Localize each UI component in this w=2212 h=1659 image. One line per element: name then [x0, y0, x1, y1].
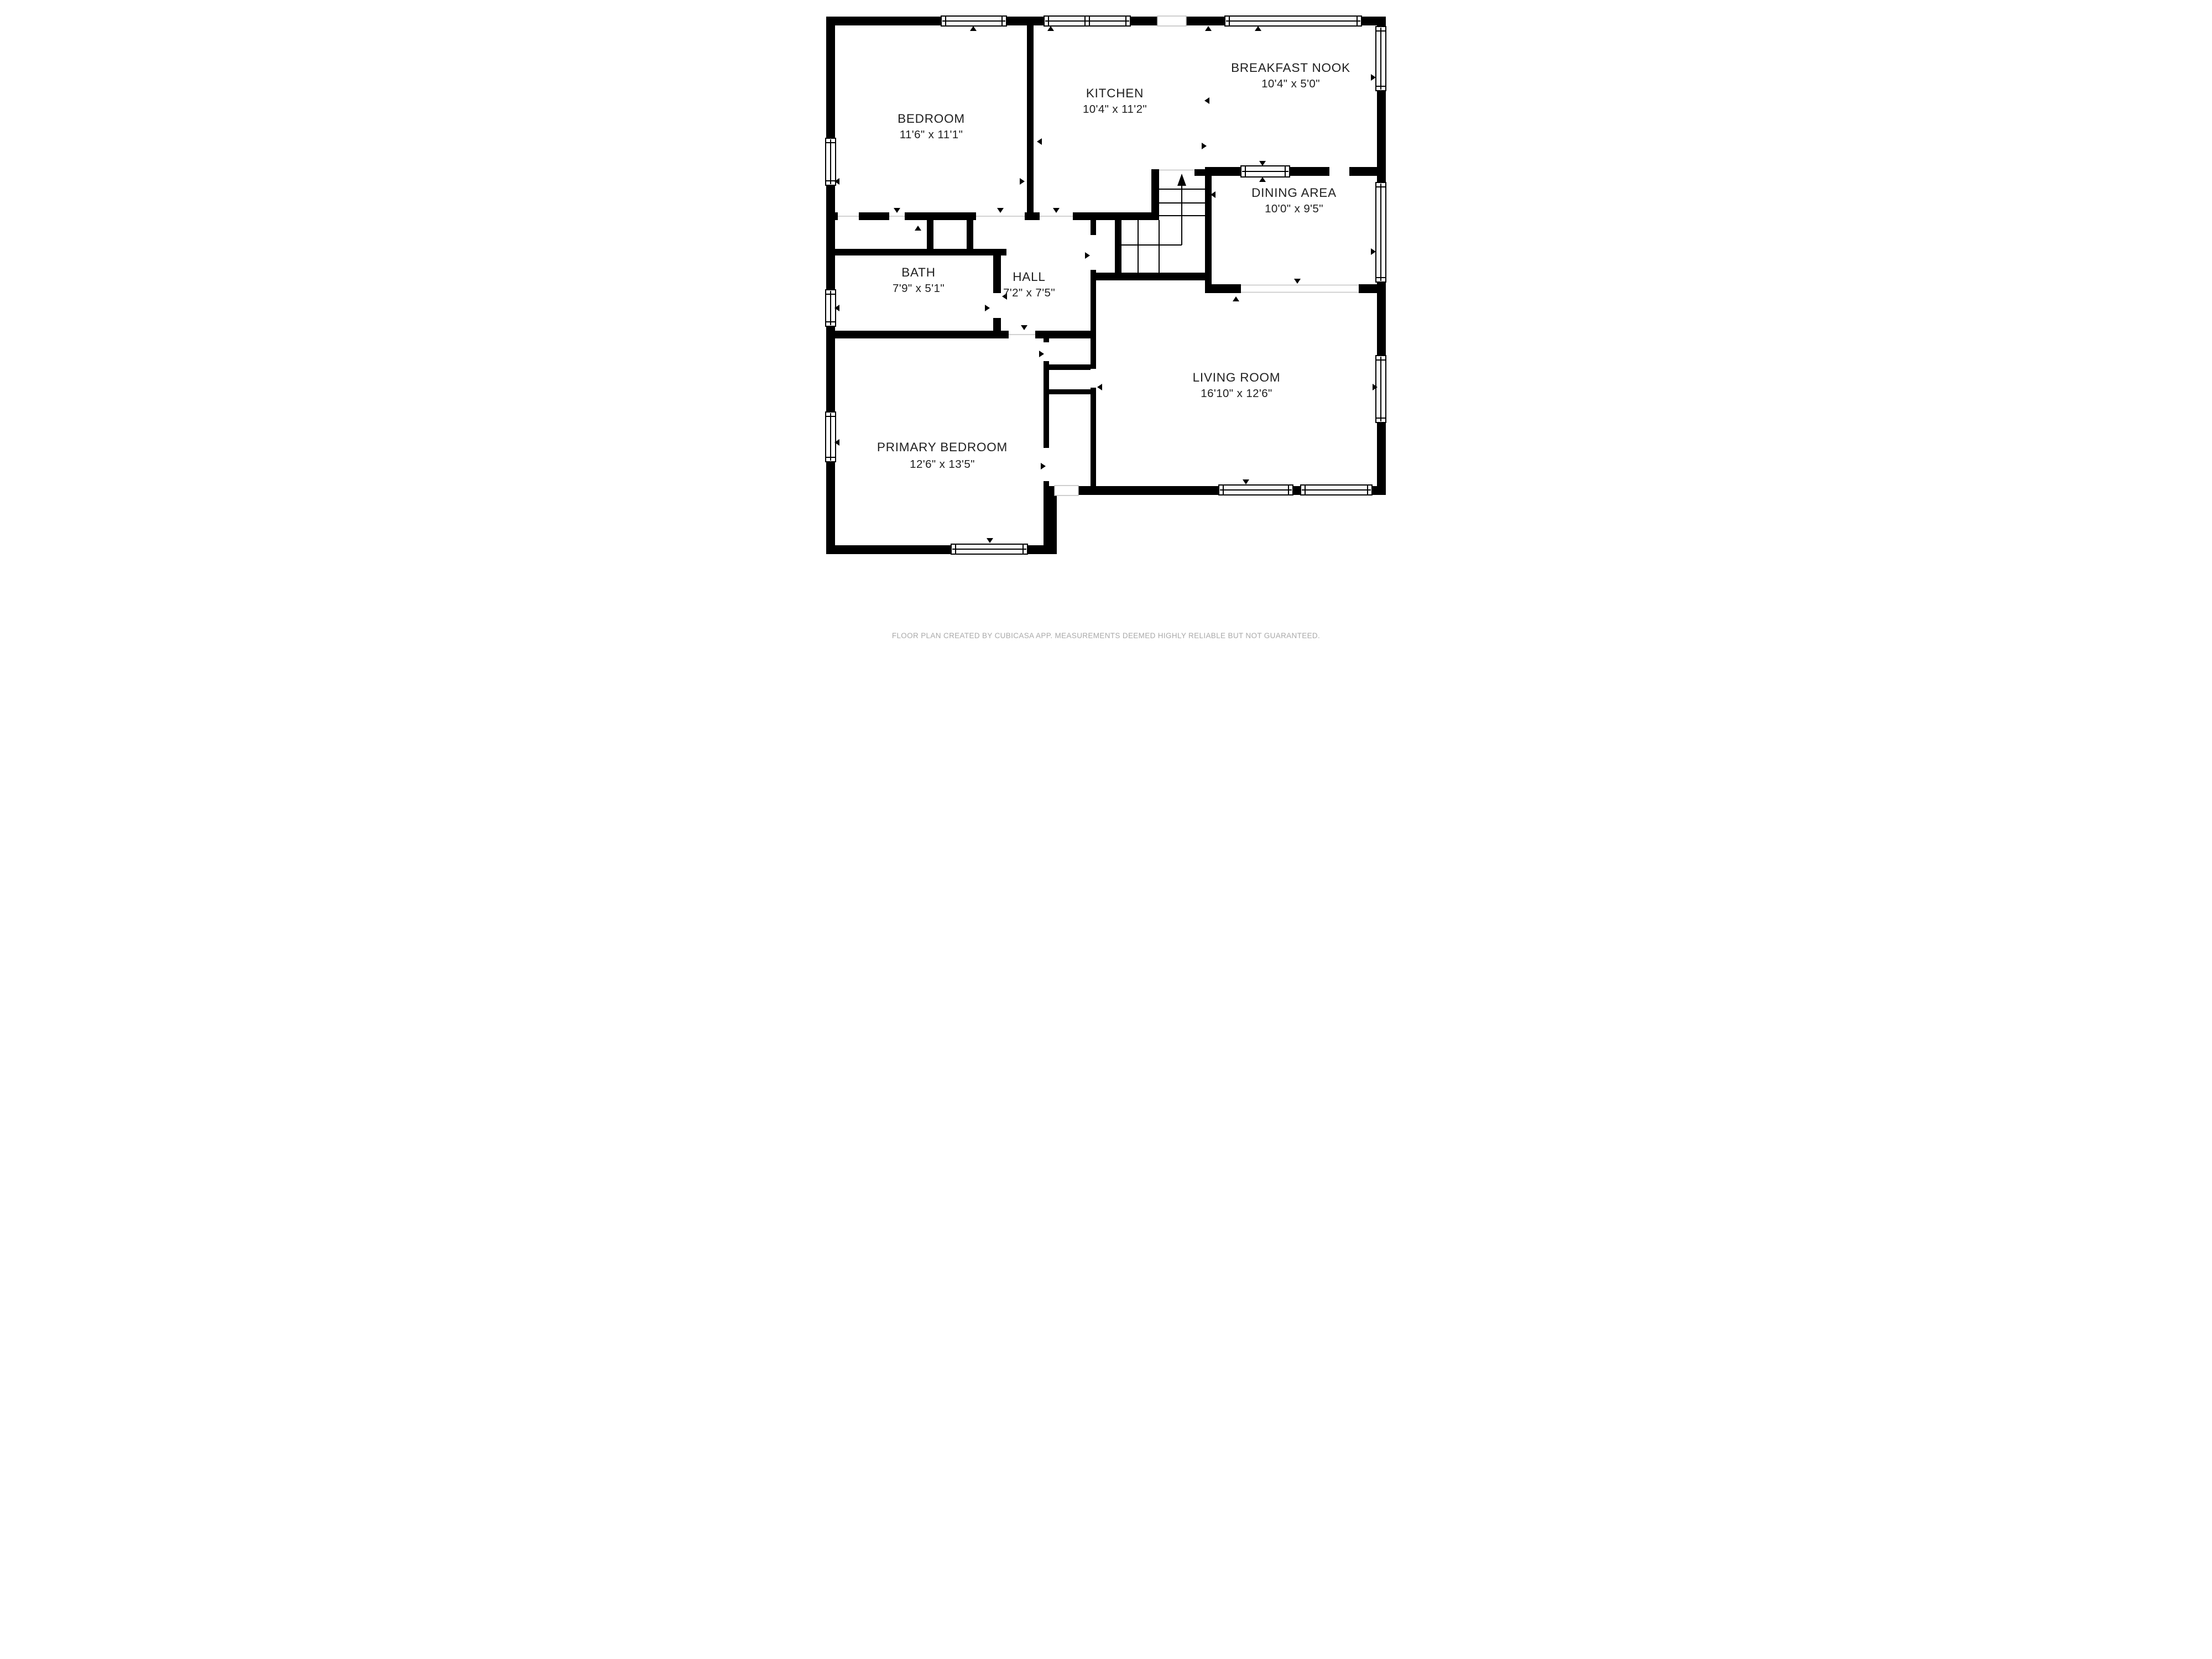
window — [1044, 16, 1130, 26]
room-name: DINING AREA — [1251, 186, 1337, 200]
door-opening — [1329, 167, 1349, 176]
opening-marker-icon — [1371, 248, 1376, 255]
room-dims: 7'2" x 7'5" — [1003, 286, 1055, 299]
room-dims: 16'10" x 12'6" — [1201, 387, 1272, 400]
opening-marker-icon — [970, 26, 977, 31]
floorplan-canvas: BEDROOM 11'6" x 11'1" KITCHEN 10'4" x 11… — [664, 0, 1548, 664]
opening-marker-icon — [1204, 97, 1209, 104]
wall-segment — [1194, 169, 1212, 176]
room-label-bedroom: BEDROOM 11'6" x 11'1" — [898, 112, 965, 141]
room-label-living-room: LIVING ROOM 16'10" x 12'6" — [1193, 371, 1281, 400]
room-dims: 12'6" x 13'5" — [910, 458, 975, 471]
window — [1301, 485, 1372, 495]
opening-marker-icon — [1039, 351, 1044, 357]
room-name: HALL — [1013, 270, 1045, 284]
opening-marker-icon — [1243, 479, 1249, 484]
opening-marker-icon — [1037, 138, 1042, 145]
opening-marker-icon — [985, 305, 990, 311]
wall-segment — [1151, 169, 1159, 220]
room-label-bath: BATH 7'9" x 5'1" — [893, 265, 945, 295]
opening-marker-icon — [1021, 325, 1027, 330]
room-dims: 10'4" x 5'0" — [1261, 77, 1320, 90]
wall-segment — [1044, 338, 1049, 545]
opening-marker-icon — [1294, 279, 1301, 284]
opening-marker-icon — [1020, 178, 1025, 185]
opening-marker-icon — [997, 208, 1004, 213]
window — [951, 544, 1027, 554]
window — [1225, 16, 1361, 26]
wall-segment — [1115, 220, 1121, 273]
door-gap — [1055, 486, 1078, 495]
opening-marker-icon — [915, 226, 921, 231]
room-name: LIVING ROOM — [1193, 371, 1281, 384]
opening-marker-icon — [1047, 26, 1054, 31]
wall-segment — [826, 17, 835, 554]
room-label-breakfast-nook: BREAKFAST NOOK 10'4" x 5'0" — [1231, 61, 1350, 90]
window — [1376, 27, 1386, 91]
room-name: BREAKFAST NOOK — [1231, 61, 1350, 75]
wall-segment — [1027, 25, 1034, 212]
staircase — [1121, 174, 1205, 273]
door-gap — [1157, 16, 1186, 26]
room-label-kitchen: KITCHEN 10'4" x 11'2" — [1083, 86, 1147, 116]
wall-segment — [1205, 167, 1377, 176]
window — [1241, 166, 1290, 177]
opening-marker-icon — [1371, 74, 1376, 81]
window — [1219, 485, 1293, 495]
opening-marker-icon — [1085, 252, 1090, 259]
opening-marker-icon — [987, 538, 993, 543]
window — [826, 290, 836, 326]
room-name: BEDROOM — [898, 112, 965, 126]
room-label-hall: HALL 7'2" x 7'5" — [1003, 270, 1055, 299]
opening-marker-icon — [1233, 296, 1239, 301]
room-dims: 10'4" x 11'2" — [1083, 103, 1147, 116]
window — [826, 138, 836, 185]
room-name: KITCHEN — [1086, 86, 1144, 100]
room-label-dining-area: DINING AREA 10'0" x 9'5" — [1251, 186, 1337, 215]
floorplan-page: BEDROOM 11'6" x 11'1" KITCHEN 10'4" x 11… — [664, 0, 1548, 664]
wall-segment — [1049, 486, 1057, 554]
window — [1376, 356, 1386, 422]
footer-disclaimer: FLOOR PLAN CREATED BY CUBICASA APP. MEAS… — [664, 632, 1548, 640]
wall-segment — [1096, 273, 1212, 280]
opening-marker-icon — [1202, 143, 1207, 149]
wide-opening — [1241, 284, 1359, 293]
opening-marker-icon — [1205, 26, 1212, 31]
room-dims: 7'9" x 5'1" — [893, 282, 945, 295]
opening-marker-icon — [1097, 384, 1102, 390]
door-opening — [993, 293, 1001, 318]
wall-segment — [835, 331, 1096, 338]
window — [1376, 182, 1386, 282]
room-dims: 10'0" x 9'5" — [1265, 202, 1323, 215]
opening-marker-icon — [1255, 26, 1261, 31]
door-opening — [1044, 448, 1049, 481]
opening-marker-icon — [1259, 161, 1266, 166]
room-dims: 11'6" x 11'1" — [900, 128, 963, 141]
door-opening — [1091, 369, 1096, 388]
room-label-primary-bedroom: PRIMARY BEDROOM 12'6" x 13'5" — [877, 440, 1008, 471]
window — [826, 412, 836, 462]
wall-segment — [1049, 364, 1091, 370]
wall-segment — [927, 220, 933, 249]
room-name: BATH — [901, 265, 936, 279]
opening-marker-icon — [1053, 208, 1060, 213]
door-opening — [1091, 235, 1096, 270]
opening-marker-icon — [894, 208, 900, 213]
door-opening — [1044, 342, 1049, 361]
room-name: PRIMARY BEDROOM — [877, 440, 1008, 454]
window — [941, 16, 1006, 26]
wall-segment — [835, 249, 1006, 255]
wall-segment — [1049, 389, 1091, 394]
opening-marker-icon — [1259, 177, 1266, 182]
